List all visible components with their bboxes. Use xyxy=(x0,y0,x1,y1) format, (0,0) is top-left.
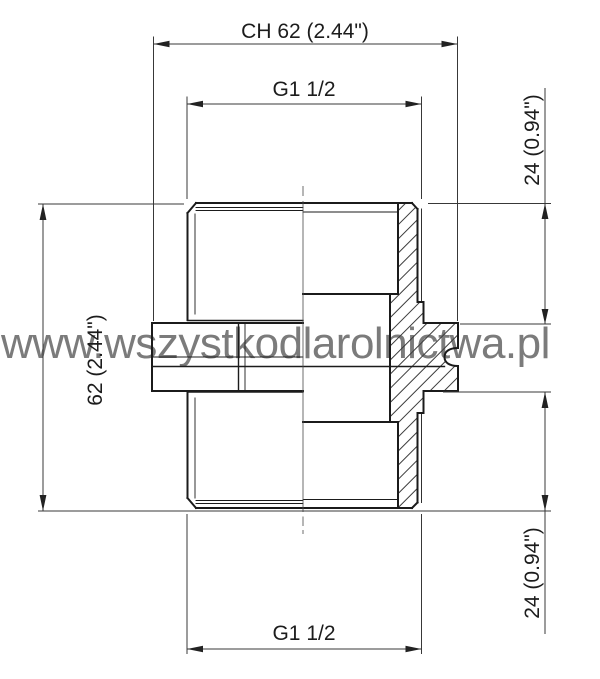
hatched-wall xyxy=(390,203,458,508)
arrowheads xyxy=(40,41,549,653)
dimension-arrows xyxy=(40,41,549,653)
dim-gtop-lines xyxy=(187,97,422,200)
dim-label-height: 62 (2.44") xyxy=(84,314,108,406)
dim-label-ch-width: CH 62 (2.44") xyxy=(241,20,369,44)
dim-label-thread-length-bottom: 24 (0.94") xyxy=(521,527,545,619)
dimension-lines xyxy=(38,37,551,655)
outline-thin xyxy=(152,208,422,504)
technical-drawing-canvas: www.wszystkodlarolnictwa.pl xyxy=(0,0,600,679)
dim-62-lines xyxy=(38,204,551,511)
dim-label-thread-length-top: 24 (0.94") xyxy=(521,94,545,186)
section-hatching xyxy=(390,203,458,508)
outline-thick xyxy=(188,203,424,508)
dim-label-thread-bottom: G1 1/2 xyxy=(272,622,335,646)
dim-label-thread-top: G1 1/2 xyxy=(272,78,335,102)
